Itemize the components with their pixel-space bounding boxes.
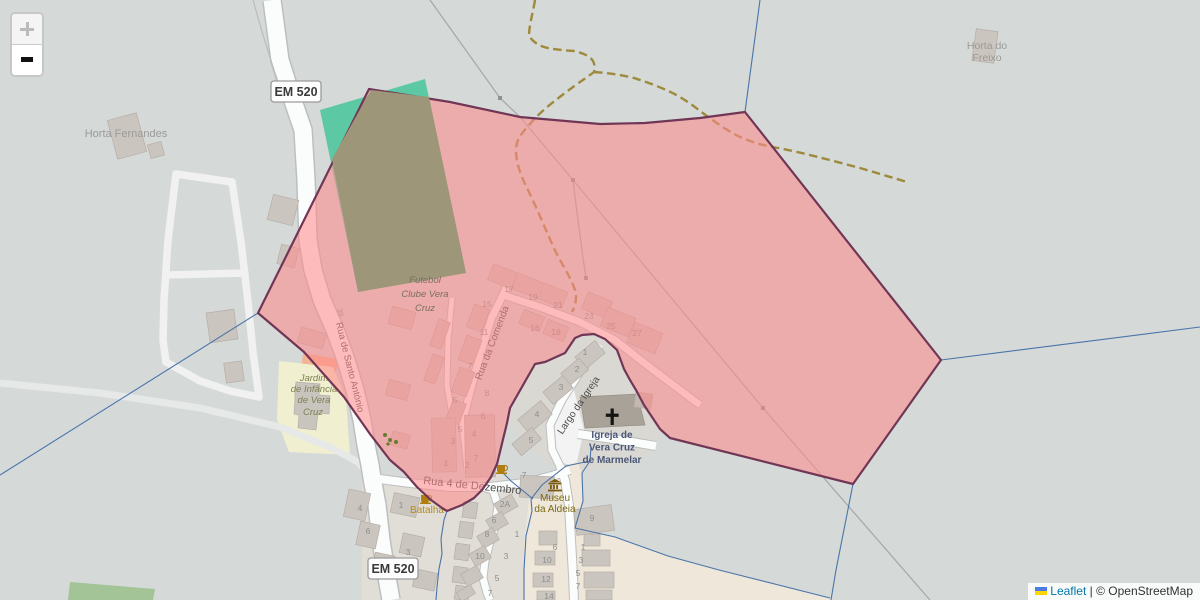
svg-text:3: 3	[579, 555, 584, 565]
svg-text:Cruz: Cruz	[415, 303, 435, 314]
svg-text:4: 4	[358, 503, 363, 513]
svg-text:Futebol: Futebol	[409, 275, 442, 286]
svg-text:6: 6	[492, 515, 497, 525]
svg-text:4: 4	[535, 409, 540, 419]
svg-text:Clube Vera: Clube Vera	[401, 289, 448, 300]
svg-text:Freixo: Freixo	[972, 52, 1001, 64]
svg-text:Museu: Museu	[540, 493, 570, 504]
svg-text:5: 5	[495, 573, 500, 583]
svg-text:2: 2	[575, 364, 580, 374]
svg-text:de Vera: de Vera	[298, 395, 331, 406]
svg-text:Igreja de: Igreja de	[591, 430, 633, 441]
svg-text:3: 3	[559, 382, 564, 392]
svg-text:EM 520: EM 520	[371, 562, 414, 576]
svg-text:7: 7	[488, 588, 493, 598]
svg-text:Horta do: Horta do	[967, 40, 1007, 52]
svg-text:1: 1	[399, 500, 404, 510]
svg-text:10: 10	[475, 551, 485, 561]
svg-text:8: 8	[485, 529, 490, 539]
svg-text:7: 7	[522, 470, 527, 480]
svg-text:Vera Cruz: Vera Cruz	[589, 443, 635, 454]
svg-text:5: 5	[576, 568, 581, 578]
svg-text:9: 9	[590, 513, 595, 523]
svg-text:3: 3	[406, 547, 411, 557]
svg-text:6: 6	[366, 526, 371, 536]
svg-text:3: 3	[504, 551, 509, 561]
svg-text:5: 5	[529, 435, 534, 445]
svg-text:12: 12	[541, 574, 551, 584]
svg-text:7: 7	[576, 581, 581, 591]
svg-text:da Aldeia: da Aldeia	[534, 504, 576, 515]
svg-text:Cruz: Cruz	[303, 407, 323, 418]
svg-text:de Infância: de Infância	[291, 384, 337, 395]
svg-text:14: 14	[544, 591, 554, 600]
svg-text:1: 1	[583, 347, 588, 357]
svg-text:de Marmelar: de Marmelar	[583, 455, 642, 466]
svg-text:EM 520: EM 520	[274, 85, 317, 99]
svg-text:1: 1	[581, 542, 586, 552]
svg-text:6: 6	[553, 542, 558, 552]
svg-text:10: 10	[542, 555, 552, 565]
svg-text:1: 1	[515, 529, 520, 539]
svg-text:Horta Fernandes: Horta Fernandes	[85, 128, 168, 140]
svg-text:2A: 2A	[500, 499, 511, 509]
